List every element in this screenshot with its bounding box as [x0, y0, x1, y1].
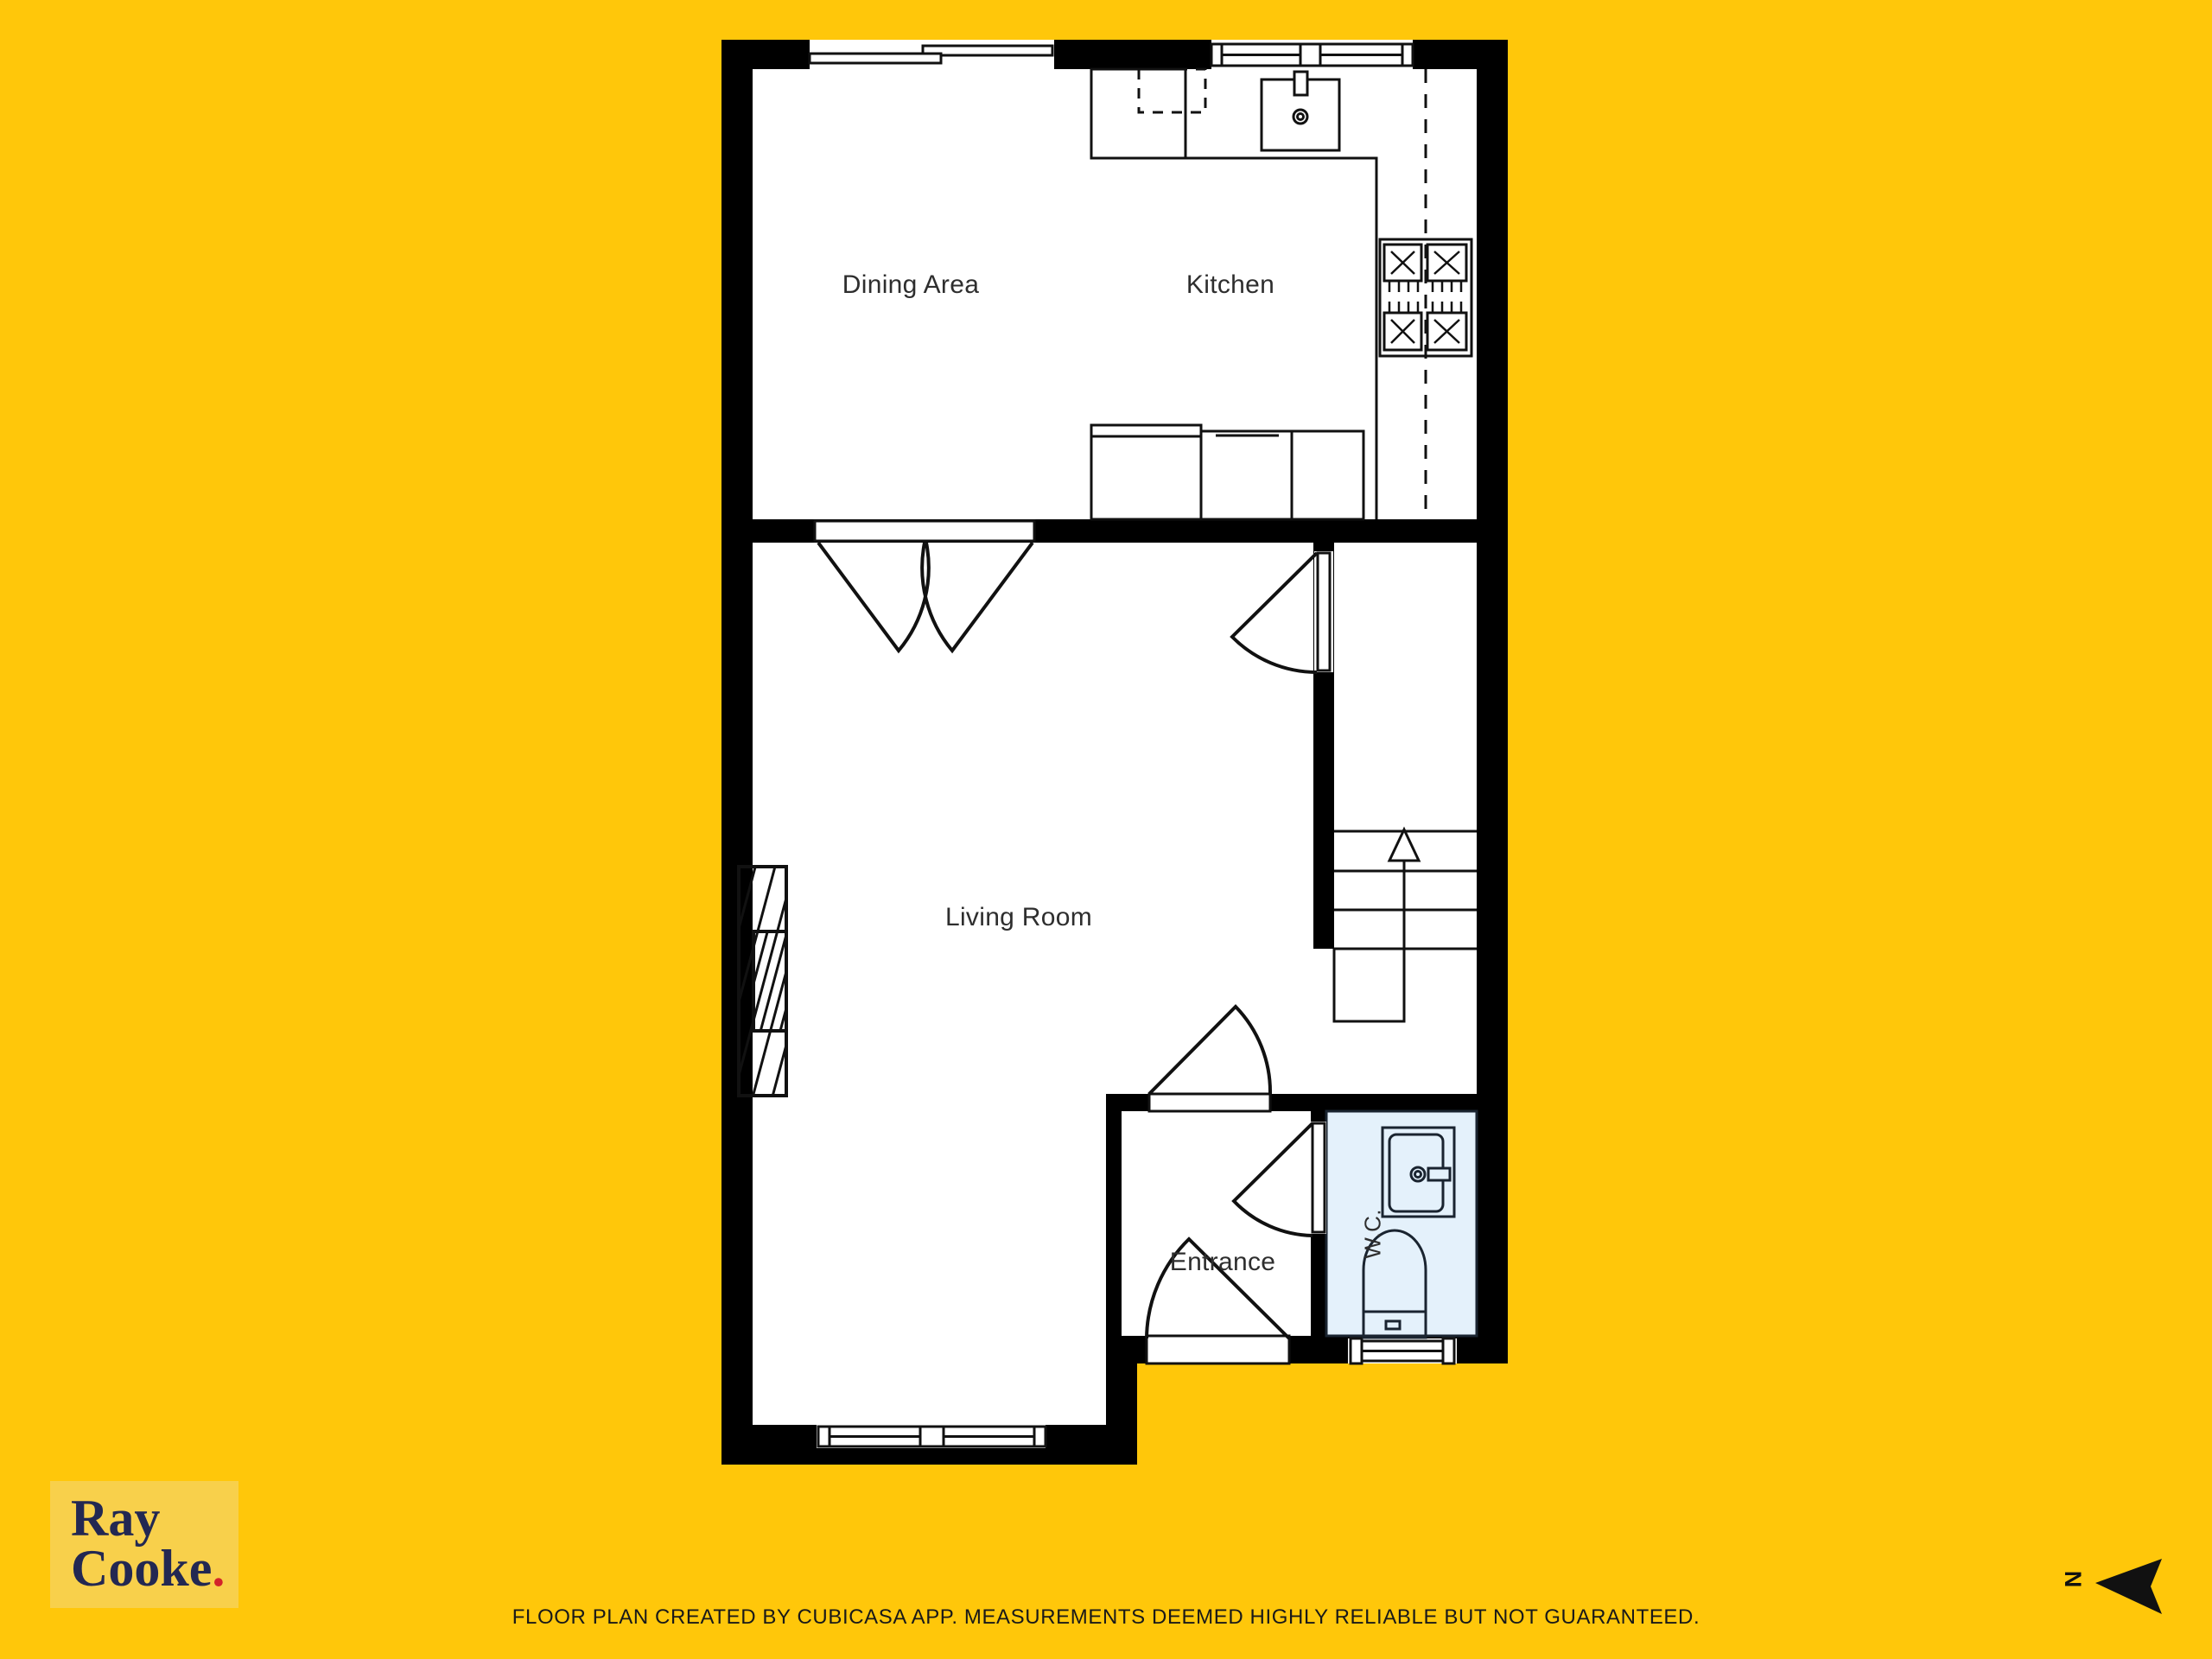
footer-disclaimer: FLOOR PLAN CREATED BY CUBICASA APP. MEAS… — [0, 1605, 2212, 1630]
floorplan-canvas: Dining Area Kitchen Living Room Entrance… — [0, 0, 2212, 1659]
floorplan-drawing — [0, 0, 2212, 1659]
window-living — [817, 1425, 1046, 1448]
compass-north-label: N — [2060, 1571, 2087, 1588]
window-dining — [810, 40, 1054, 69]
room-label-living-room: Living Room — [945, 903, 1092, 932]
agency-logo-dot: . — [212, 1540, 225, 1597]
agency-logo-line2-row: Cooke. — [71, 1543, 238, 1593]
agency-logo: Ray Cooke. — [50, 1481, 238, 1608]
room-label-kitchen: Kitchen — [1186, 270, 1274, 300]
room-label-dining-area: Dining Area — [842, 270, 979, 300]
wall-entrance-left — [1106, 1111, 1122, 1336]
window-kitchen — [1211, 40, 1413, 69]
kitchen-cabinets — [1091, 425, 1363, 519]
chimney-hatch — [739, 867, 786, 1096]
wall-left — [721, 40, 753, 1465]
window-wc — [1348, 1338, 1457, 1363]
room-label-entrance: Entrance — [1170, 1248, 1275, 1277]
agency-logo-line2: Cooke — [71, 1540, 212, 1597]
wall-step — [1106, 1336, 1137, 1465]
agency-logo-line1: Ray — [71, 1493, 238, 1543]
wall-right — [1477, 40, 1508, 1363]
room-label-wc: W.C. — [1360, 1209, 1387, 1259]
